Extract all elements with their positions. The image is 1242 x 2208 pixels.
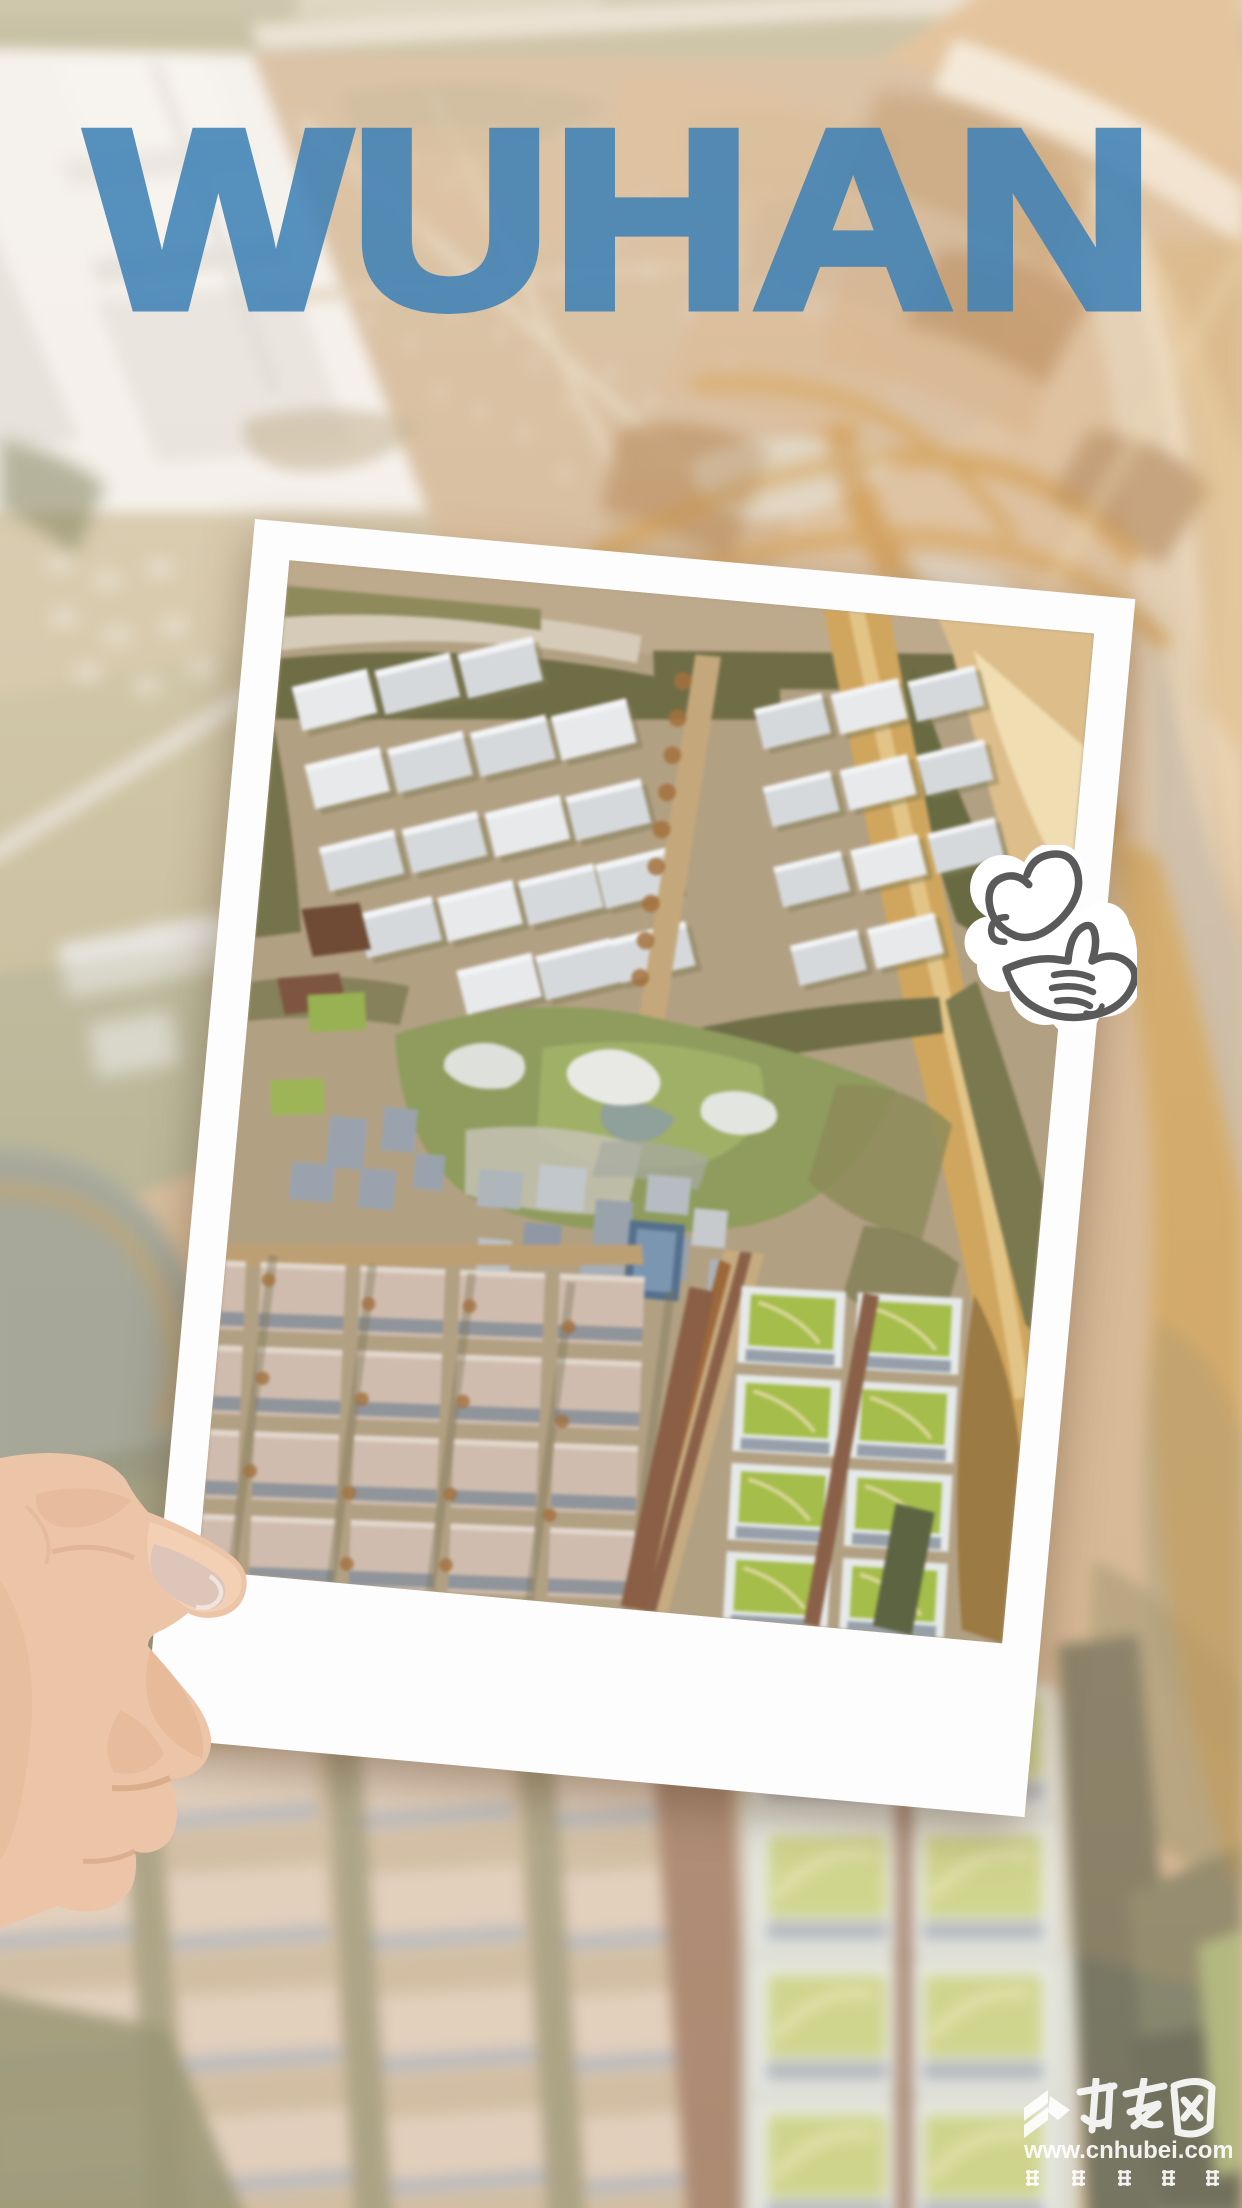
svg-text:www.cnhubei.com: www.cnhubei.com xyxy=(1023,2137,1232,2164)
svg-text:WUHAN: WUHAN xyxy=(87,77,1155,361)
